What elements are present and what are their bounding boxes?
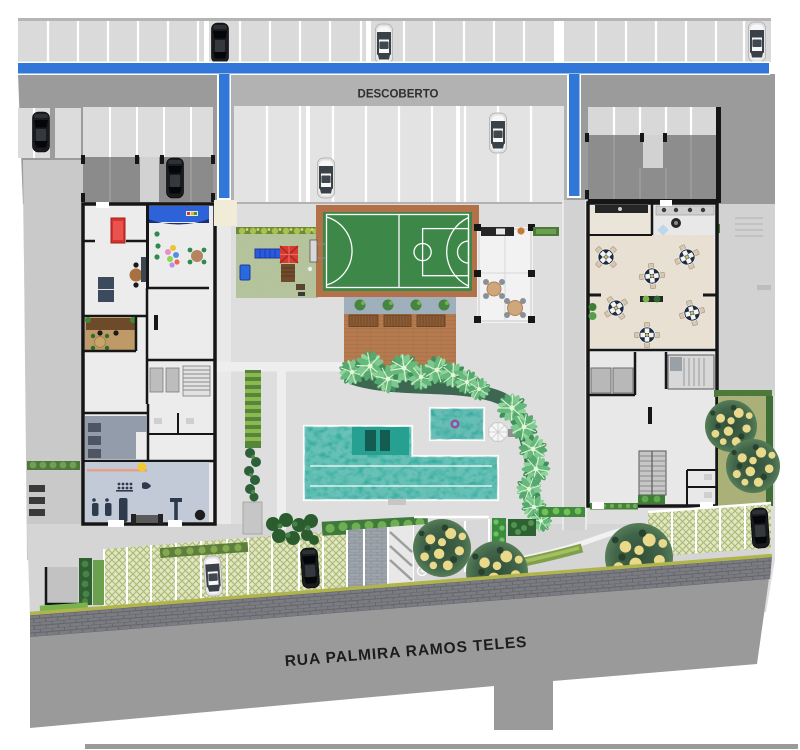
svg-text:DESCOBERTO: DESCOBERTO [358, 89, 439, 101]
